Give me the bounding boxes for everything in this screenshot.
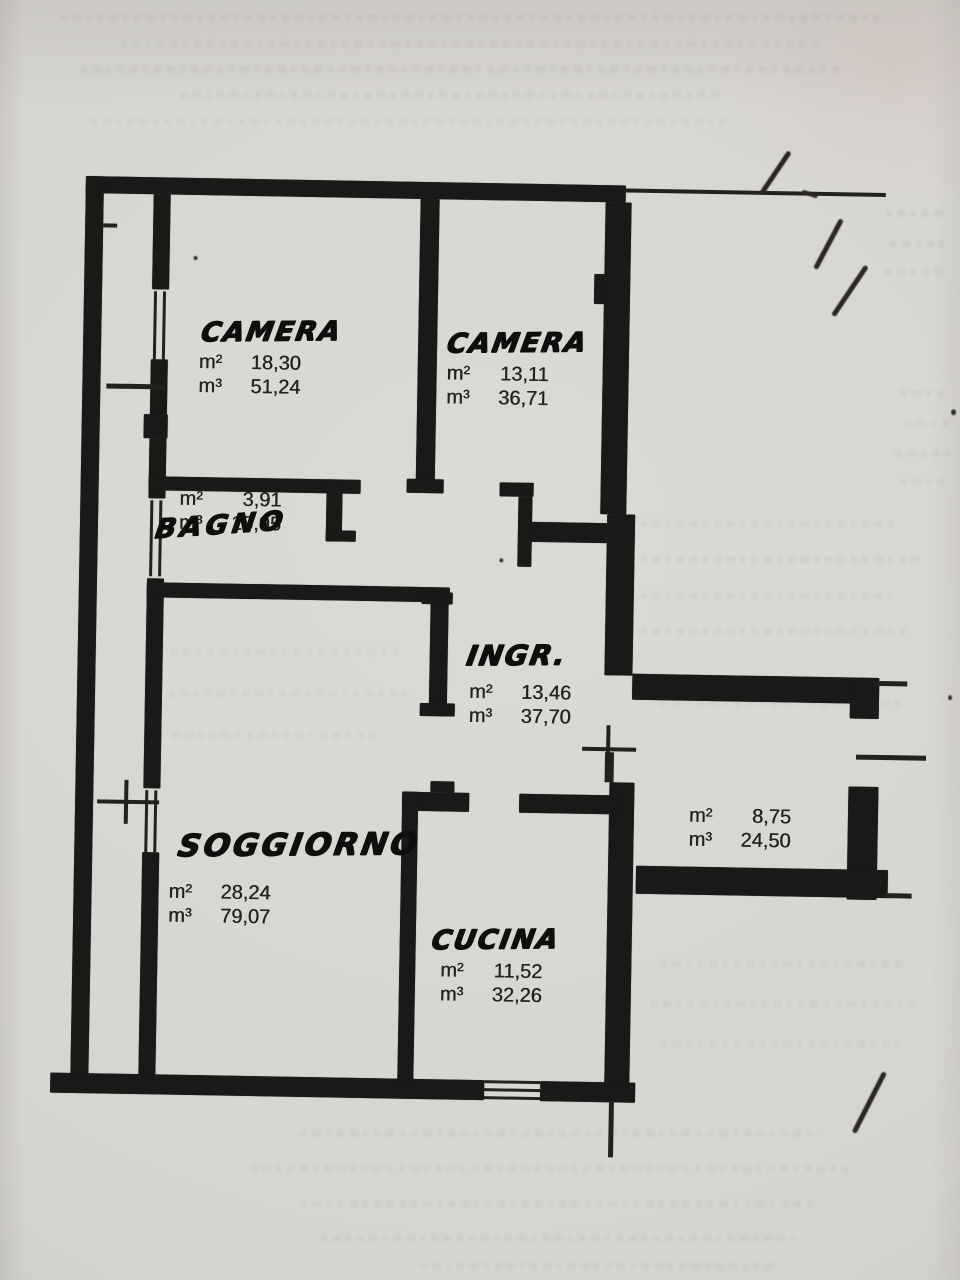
volume-unit: m³ — [440, 982, 480, 1007]
wall-left-outer — [70, 176, 104, 1088]
cross-mark — [606, 725, 611, 773]
area-unit: m² — [440, 958, 480, 983]
wall-bottom-left — [50, 1073, 484, 1101]
door-jamb — [407, 479, 444, 494]
wall-right-mid — [604, 514, 635, 675]
door-jamb — [326, 530, 356, 542]
area-unit: m² — [689, 804, 729, 829]
balcony-door-line — [162, 291, 166, 359]
wall-camera-divider — [416, 199, 440, 481]
area-value: 13,11 — [486, 362, 548, 387]
thin-extension — [877, 681, 907, 687]
room-dims-cucina: m²11,52 m³32,26 — [440, 958, 543, 1008]
wall-corridor-topright — [850, 677, 880, 718]
area-unit: m² — [168, 880, 208, 905]
ink-dot — [948, 695, 952, 700]
pencil-mark — [831, 265, 869, 318]
volume-unit: m³ — [468, 704, 508, 729]
volume-unit: m³ — [688, 828, 728, 853]
wall-right-lower — [604, 782, 634, 1084]
wall-room-right-bottom — [636, 866, 888, 898]
wall-camera2-nook-top — [500, 482, 534, 497]
area-value: 28,24 — [208, 880, 270, 905]
thin-line-top-right — [624, 188, 886, 197]
ink-dot — [951, 409, 956, 415]
wall-cucina-top-right — [519, 794, 617, 815]
room-dims-ingresso: m²13,46 m³37,70 — [468, 680, 571, 730]
area-value: 11,52 — [480, 959, 542, 984]
volume-value: 51,24 — [238, 375, 300, 400]
thin-extension — [886, 893, 912, 898]
balcony-door-line — [153, 291, 157, 359]
wall-balcony-inner — [152, 194, 171, 289]
room-name-soggiorno: SOGGIORNO — [175, 826, 423, 864]
ink-dot — [194, 256, 198, 260]
thin-line-below — [608, 1102, 614, 1157]
area-unit: m² — [179, 487, 219, 512]
wall-niche — [143, 414, 167, 438]
volume-value: 24,50 — [728, 828, 790, 853]
room-dims-camera-2: m²13,11 m³36,71 — [446, 361, 549, 411]
wall-bagno-bottom — [147, 582, 450, 602]
window-line-right — [856, 755, 926, 761]
room-dims-room-right: m²8,75 m³24,50 — [688, 804, 791, 854]
wall-corridor-top — [632, 674, 852, 704]
room-name-cucina: CUCINA — [429, 924, 562, 956]
volume-value: 79,07 — [208, 904, 270, 929]
room-name-ingresso: INGR. — [464, 638, 570, 672]
room-name-camera-2: CAMERA — [444, 327, 590, 359]
tick-mark — [103, 223, 117, 227]
wall-bump — [594, 274, 607, 304]
volume-value: 37,70 — [508, 705, 570, 730]
area-unit: m² — [199, 350, 239, 375]
volume-value: 36,71 — [486, 386, 548, 411]
area-value: 18,30 — [239, 351, 301, 376]
wall-balcony-inner — [143, 578, 164, 788]
door-jamb — [420, 703, 455, 717]
pencil-mark — [852, 1071, 887, 1134]
wall-ingresso-topright — [531, 522, 607, 543]
pencil-mark — [760, 150, 792, 194]
door-jamb — [430, 781, 454, 792]
wall-ingresso-left — [429, 592, 449, 714]
wall-balcony-inner — [138, 852, 159, 1076]
volume-unit: m³ — [198, 374, 238, 399]
area-unit: m² — [469, 680, 509, 705]
window-line-bottom — [484, 1096, 540, 1100]
volume-unit: m³ — [446, 385, 486, 410]
floor-plan: CAMERA m²18,30 m³51,24 CAMERA m²13,11 m³… — [0, 0, 960, 1280]
wall-right-upper — [600, 202, 631, 514]
window-line-bottom — [484, 1088, 540, 1092]
door-jamb — [422, 592, 453, 605]
area-value: 8,75 — [729, 804, 791, 829]
pencil-mark — [813, 218, 844, 270]
volume-unit: m³ — [168, 904, 208, 929]
tick-mark — [106, 383, 164, 389]
window-line-bottom — [484, 1080, 540, 1084]
room-name-bagno: BAGNO — [153, 505, 289, 545]
room-dims-soggiorno: m²28,24 m³79,07 — [168, 880, 271, 930]
area-unit: m² — [446, 361, 486, 386]
cross-mark — [124, 780, 129, 824]
area-value: 13,46 — [509, 681, 571, 706]
room-dims-camera-1: m²18,30 m³51,24 — [198, 350, 301, 400]
scanned-floor-plan-page: CAMERA m²18,30 m³51,24 CAMERA m²13,11 m³… — [0, 0, 960, 1280]
room-name-camera-1: CAMERA — [198, 316, 344, 348]
ink-dot — [499, 558, 503, 562]
volume-value: 32,26 — [480, 983, 542, 1008]
